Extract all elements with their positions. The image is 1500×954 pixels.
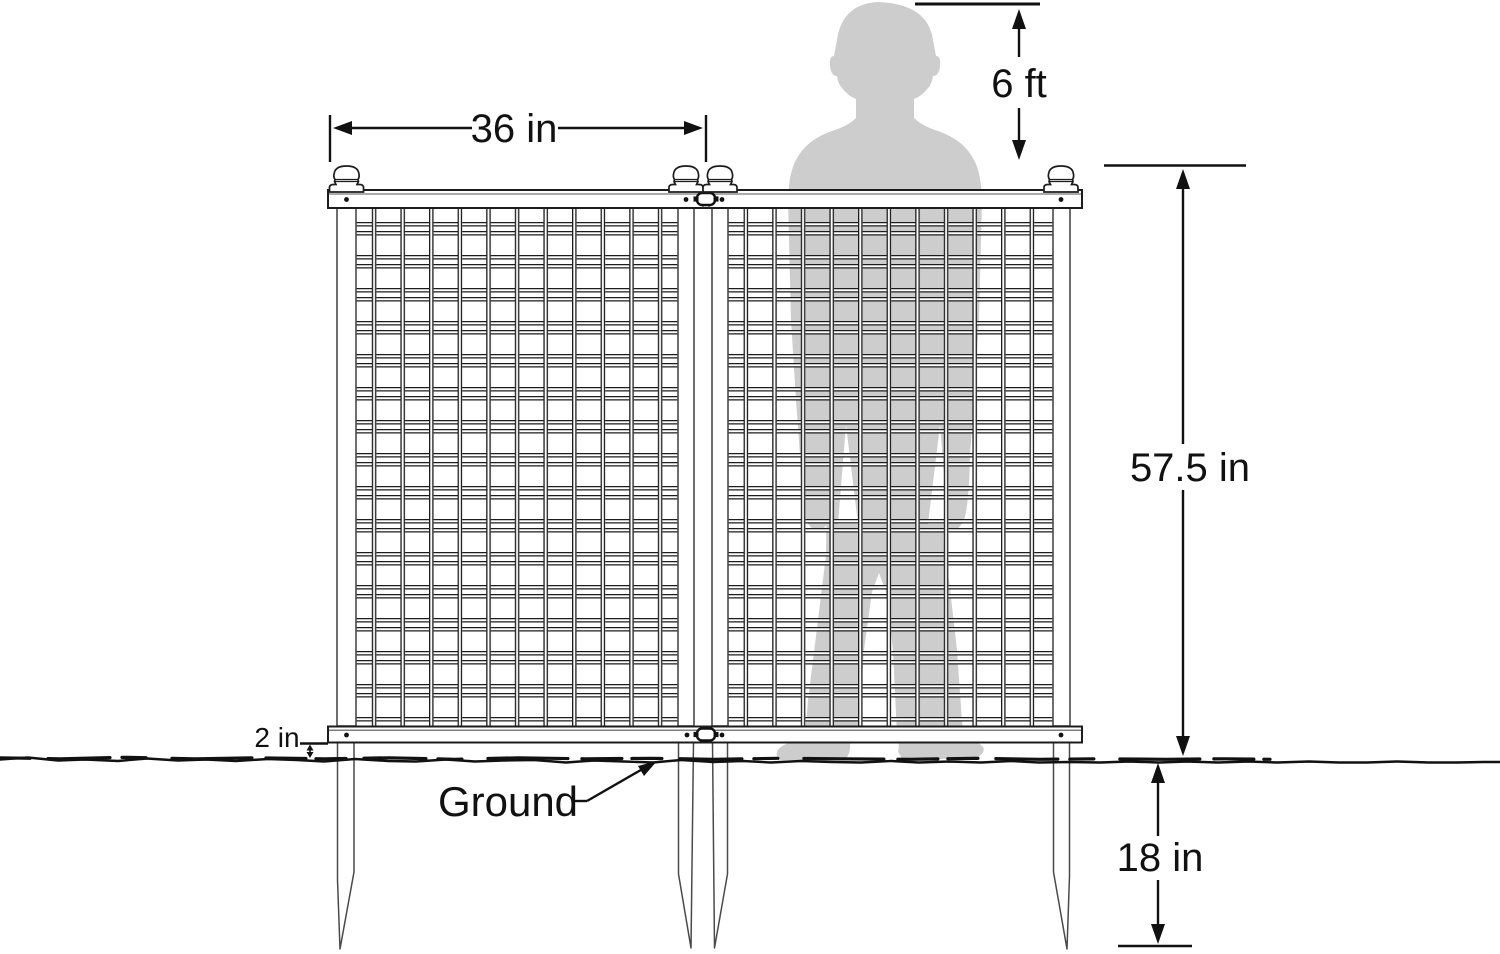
stake-depth-label: 18 in [1117, 836, 1204, 880]
panel-width-label: 36 in [471, 107, 558, 151]
arrow-down-icon [1151, 924, 1165, 944]
ground-callout: Ground [438, 761, 657, 825]
fence-height-label: 57.5 in [1130, 446, 1250, 490]
panel-connector-top [694, 193, 719, 205]
arrow-up-icon [1176, 169, 1190, 189]
dimension-panel-width: 36 in [330, 107, 706, 162]
arrow-down-icon [307, 752, 314, 758]
post-cap-mid-right [703, 166, 737, 192]
post-left [337, 192, 356, 726]
ground-label: Ground [438, 778, 578, 825]
arrow-up-icon [1012, 9, 1026, 29]
post-cap-mid-left [669, 166, 703, 192]
stake-mid-left [679, 743, 694, 949]
panel-connector-bottom [694, 729, 719, 741]
stake-left [338, 743, 355, 950]
arrow-left-icon [333, 121, 352, 135]
diagram-canvas: 36 in 6 ft 57.5 in 18 in 2 in Groun [0, 0, 1500, 954]
post-cap-left [330, 166, 364, 192]
arrow-down-icon [1012, 140, 1026, 160]
dimension-ground-gap: 2 in [254, 722, 328, 758]
post-mid-right [712, 192, 728, 726]
dimension-stake-depth: 18 in [1117, 763, 1204, 946]
ground-stakes [338, 743, 1070, 950]
dimension-fence-height: 57.5 in [1104, 166, 1250, 757]
arrow-up-icon [307, 745, 314, 751]
person-height-label: 6 ft [991, 62, 1047, 106]
post-mid-left [678, 192, 694, 726]
arrow-right-icon [684, 121, 703, 135]
fence-mesh [356, 208, 1053, 727]
stake-mid-right [713, 743, 728, 949]
arrow-up-icon [1151, 763, 1165, 783]
fence-dimension-diagram: 36 in 6 ft 57.5 in 18 in 2 in Groun [0, 0, 1500, 954]
arrow-down-icon [1176, 736, 1190, 756]
post-right [1053, 192, 1070, 726]
stake-right [1054, 743, 1070, 950]
ground-gap-label: 2 in [254, 722, 299, 753]
mesh-panel-right [728, 208, 1053, 727]
post-cap-right [1044, 166, 1078, 192]
ground-line [0, 757, 1500, 762]
mesh-panel-left [356, 208, 678, 727]
